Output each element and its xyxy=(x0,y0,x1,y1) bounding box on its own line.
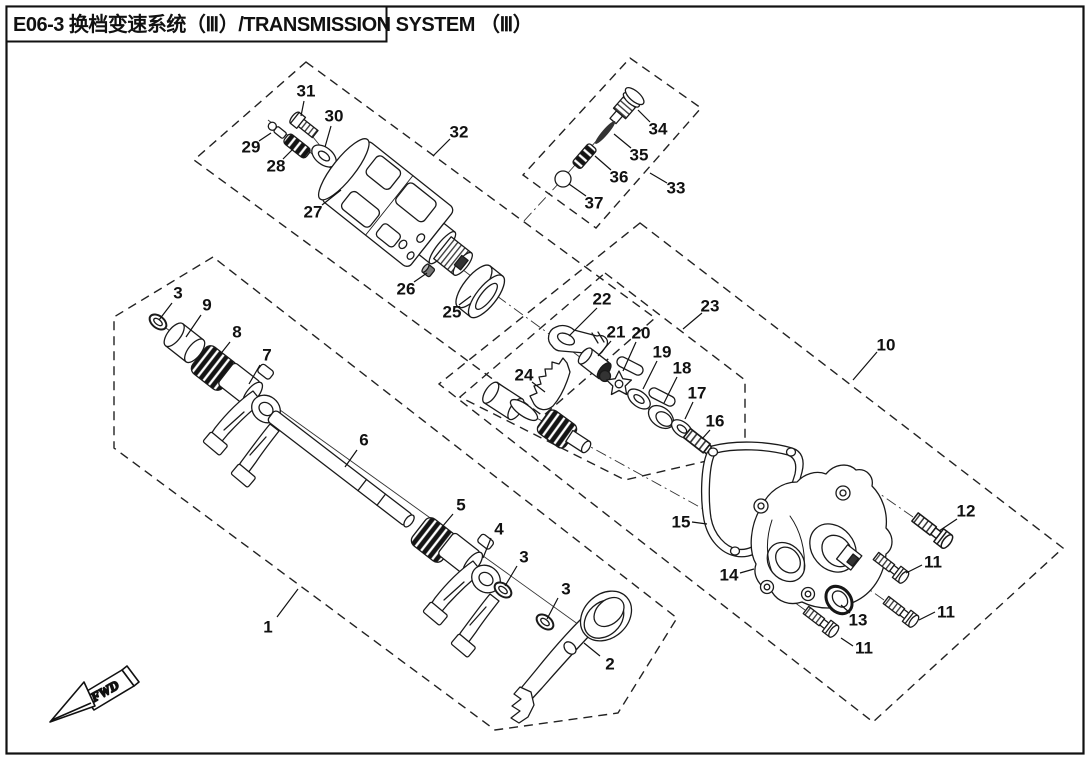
part-label-17: 17 xyxy=(688,384,707,403)
diagram-title: E06-3 换档变速系统（Ⅲ）/TRANSMISSION SYSTEM （Ⅲ） xyxy=(13,12,532,36)
part-37-ball xyxy=(555,171,571,187)
part-label-24: 24 xyxy=(515,366,534,385)
part-label-2: 2 xyxy=(605,655,614,674)
part-label-3: 3 xyxy=(519,548,528,567)
part-label-3: 3 xyxy=(173,284,182,303)
part-label-22: 22 xyxy=(593,290,612,309)
part-label-14: 14 xyxy=(720,566,739,585)
part-label-11: 11 xyxy=(855,639,873,658)
part-label-37: 37 xyxy=(585,194,604,213)
part-label-7: 7 xyxy=(262,346,271,365)
part-label-4: 4 xyxy=(494,520,504,539)
part-label-28: 28 xyxy=(267,157,286,176)
part-label-10: 10 xyxy=(877,336,896,355)
part-label-36: 36 xyxy=(610,168,629,187)
part-label-32: 32 xyxy=(450,123,469,142)
part-label-30: 30 xyxy=(325,107,344,126)
part-label-21: 21 xyxy=(607,323,626,342)
part-label-5: 5 xyxy=(456,496,465,515)
part-label-35: 35 xyxy=(630,146,649,165)
part-label-29: 29 xyxy=(242,138,261,157)
part-label-15: 15 xyxy=(672,513,691,532)
part-label-16: 16 xyxy=(706,412,725,431)
part-label-33: 33 xyxy=(667,179,686,198)
part-label-9: 9 xyxy=(202,296,211,315)
part-label-25: 25 xyxy=(443,303,462,322)
part-label-26: 26 xyxy=(397,280,416,299)
part-label-11: 11 xyxy=(924,553,942,572)
part-label-18: 18 xyxy=(673,359,692,378)
part-label-13: 13 xyxy=(849,611,868,630)
part-label-3: 3 xyxy=(561,580,570,599)
part-label-31: 31 xyxy=(297,82,316,101)
part-label-12: 12 xyxy=(957,502,976,521)
parts-diagram-page: 1239876543327262528293031323334353637222… xyxy=(0,0,1090,760)
part-label-19: 19 xyxy=(653,343,672,362)
part-label-1: 1 xyxy=(263,618,272,637)
diagram-canvas: 1239876543327262528293031323334353637222… xyxy=(0,0,1090,760)
part-label-11: 11 xyxy=(937,603,955,622)
part-label-20: 20 xyxy=(632,324,651,343)
part-label-23: 23 xyxy=(701,297,720,316)
part-label-27: 27 xyxy=(304,203,323,222)
part-label-34: 34 xyxy=(649,120,668,139)
part-label-6: 6 xyxy=(359,431,368,450)
part-label-8: 8 xyxy=(232,323,241,342)
